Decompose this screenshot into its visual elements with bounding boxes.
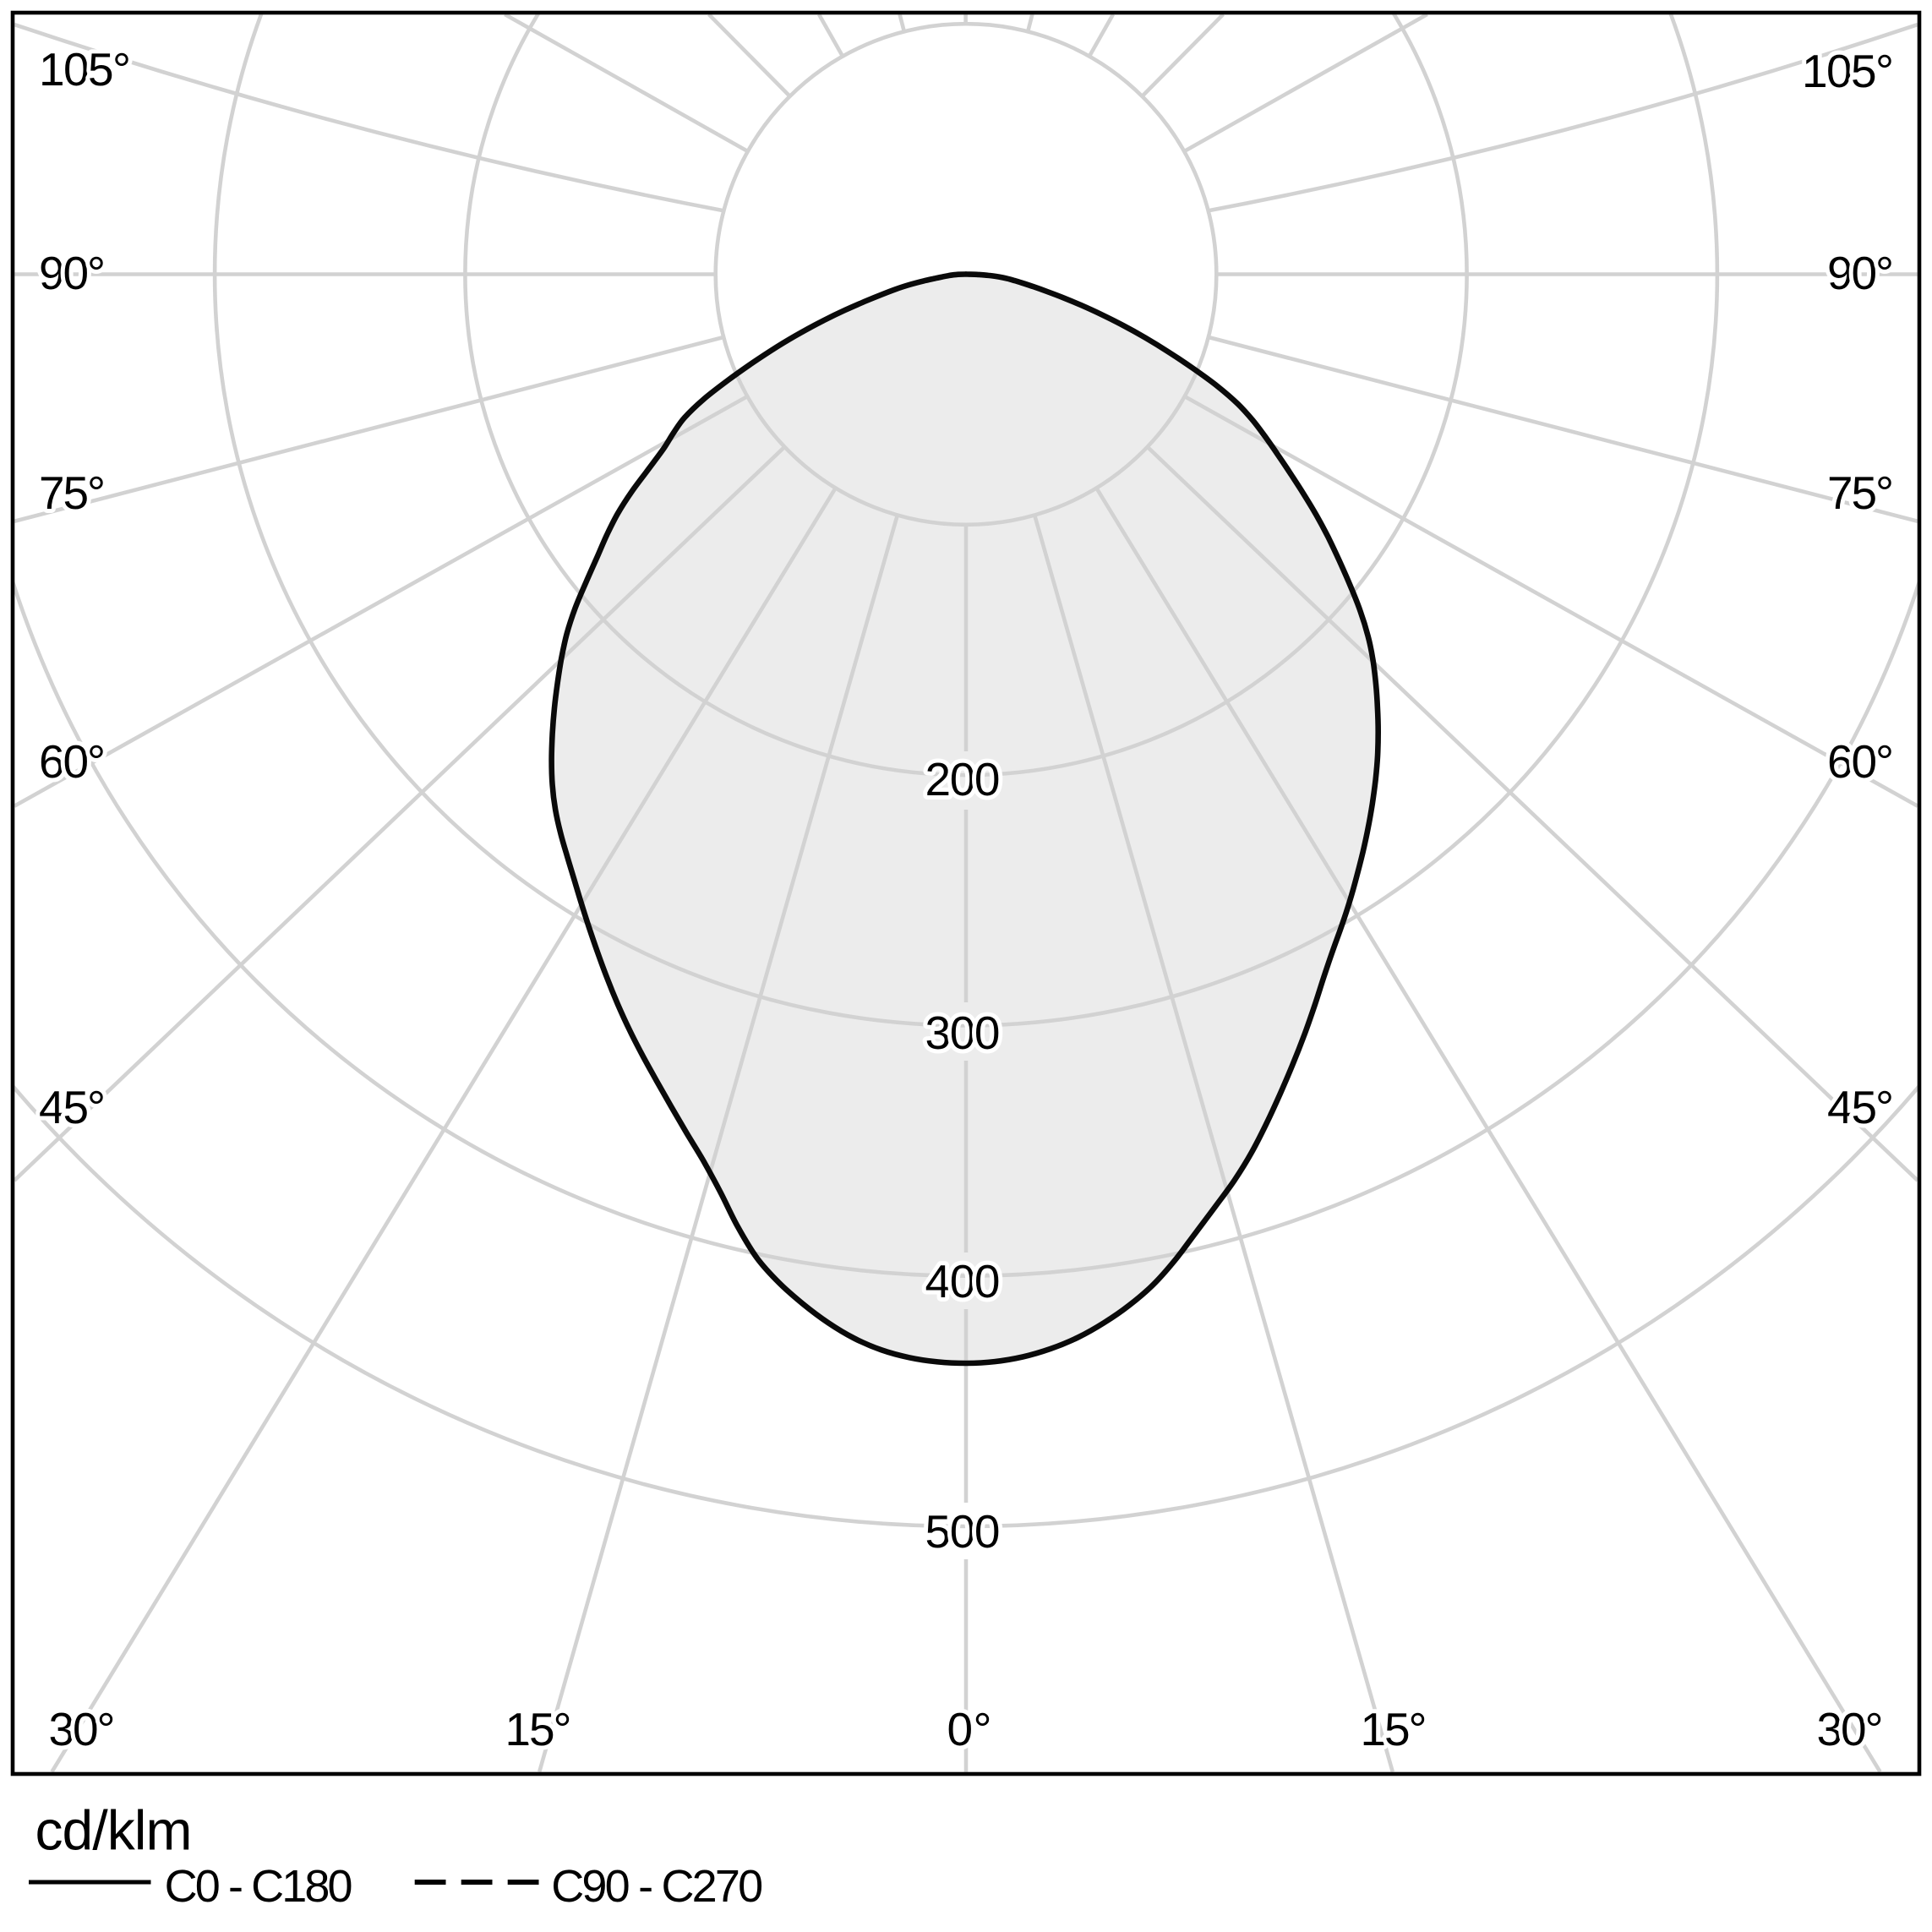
svg-text:30°: 30° bbox=[1817, 1703, 1884, 1755]
svg-text:90°: 90° bbox=[1827, 247, 1894, 299]
svg-text:C0 - C180: C0 - C180 bbox=[165, 1861, 353, 1912]
svg-text:90°: 90° bbox=[39, 247, 106, 299]
svg-text:200: 200 bbox=[925, 753, 1001, 805]
svg-text:75°: 75° bbox=[1827, 467, 1894, 519]
svg-text:15°: 15° bbox=[505, 1703, 572, 1755]
svg-text:15°: 15° bbox=[1361, 1703, 1427, 1755]
svg-text:105°: 105° bbox=[39, 43, 131, 96]
svg-text:400: 400 bbox=[925, 1255, 1001, 1307]
svg-text:105°: 105° bbox=[1802, 45, 1894, 97]
svg-text:45°: 45° bbox=[1827, 1081, 1894, 1133]
svg-text:300: 300 bbox=[925, 1007, 1001, 1059]
svg-text:C90 - C270: C90 - C270 bbox=[551, 1861, 763, 1912]
svg-text:75°: 75° bbox=[39, 467, 106, 519]
svg-text:cd/klm: cd/klm bbox=[35, 1799, 193, 1862]
svg-text:45°: 45° bbox=[39, 1081, 106, 1133]
svg-text:0°: 0° bbox=[947, 1703, 992, 1755]
svg-text:500: 500 bbox=[925, 1505, 1001, 1558]
svg-text:60°: 60° bbox=[39, 735, 106, 788]
svg-text:60°: 60° bbox=[1827, 735, 1894, 788]
svg-text:30°: 30° bbox=[49, 1703, 116, 1755]
